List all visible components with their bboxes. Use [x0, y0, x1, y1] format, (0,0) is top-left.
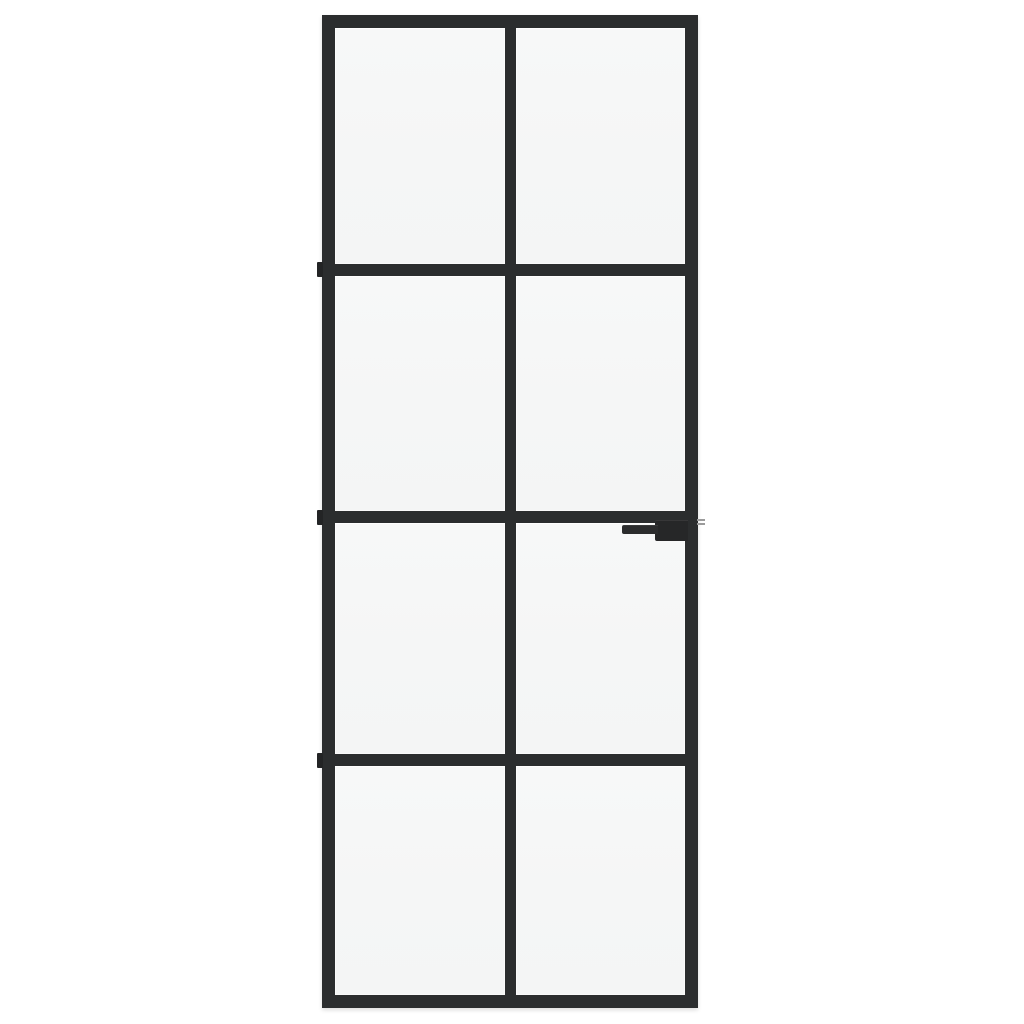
door-hinge-middle	[317, 510, 323, 525]
latch-spindle	[697, 519, 705, 531]
glass-pane	[516, 28, 686, 264]
glass-pane	[335, 523, 505, 754]
glass-pane	[516, 766, 686, 995]
glass-pane	[335, 276, 505, 511]
handle-base-plate	[655, 520, 688, 541]
glass-pane	[335, 766, 505, 995]
latch-line	[697, 519, 705, 521]
glass-door	[322, 15, 698, 1008]
glass-pane	[516, 523, 686, 754]
glass-grid	[335, 28, 685, 995]
door-hinge-top	[317, 262, 323, 277]
handle-lever	[622, 525, 658, 534]
glass-pane	[516, 276, 686, 511]
door-hinge-bottom	[317, 753, 323, 768]
latch-line	[697, 523, 705, 525]
glass-pane	[335, 28, 505, 264]
product-photo-canvas	[0, 0, 1024, 1024]
